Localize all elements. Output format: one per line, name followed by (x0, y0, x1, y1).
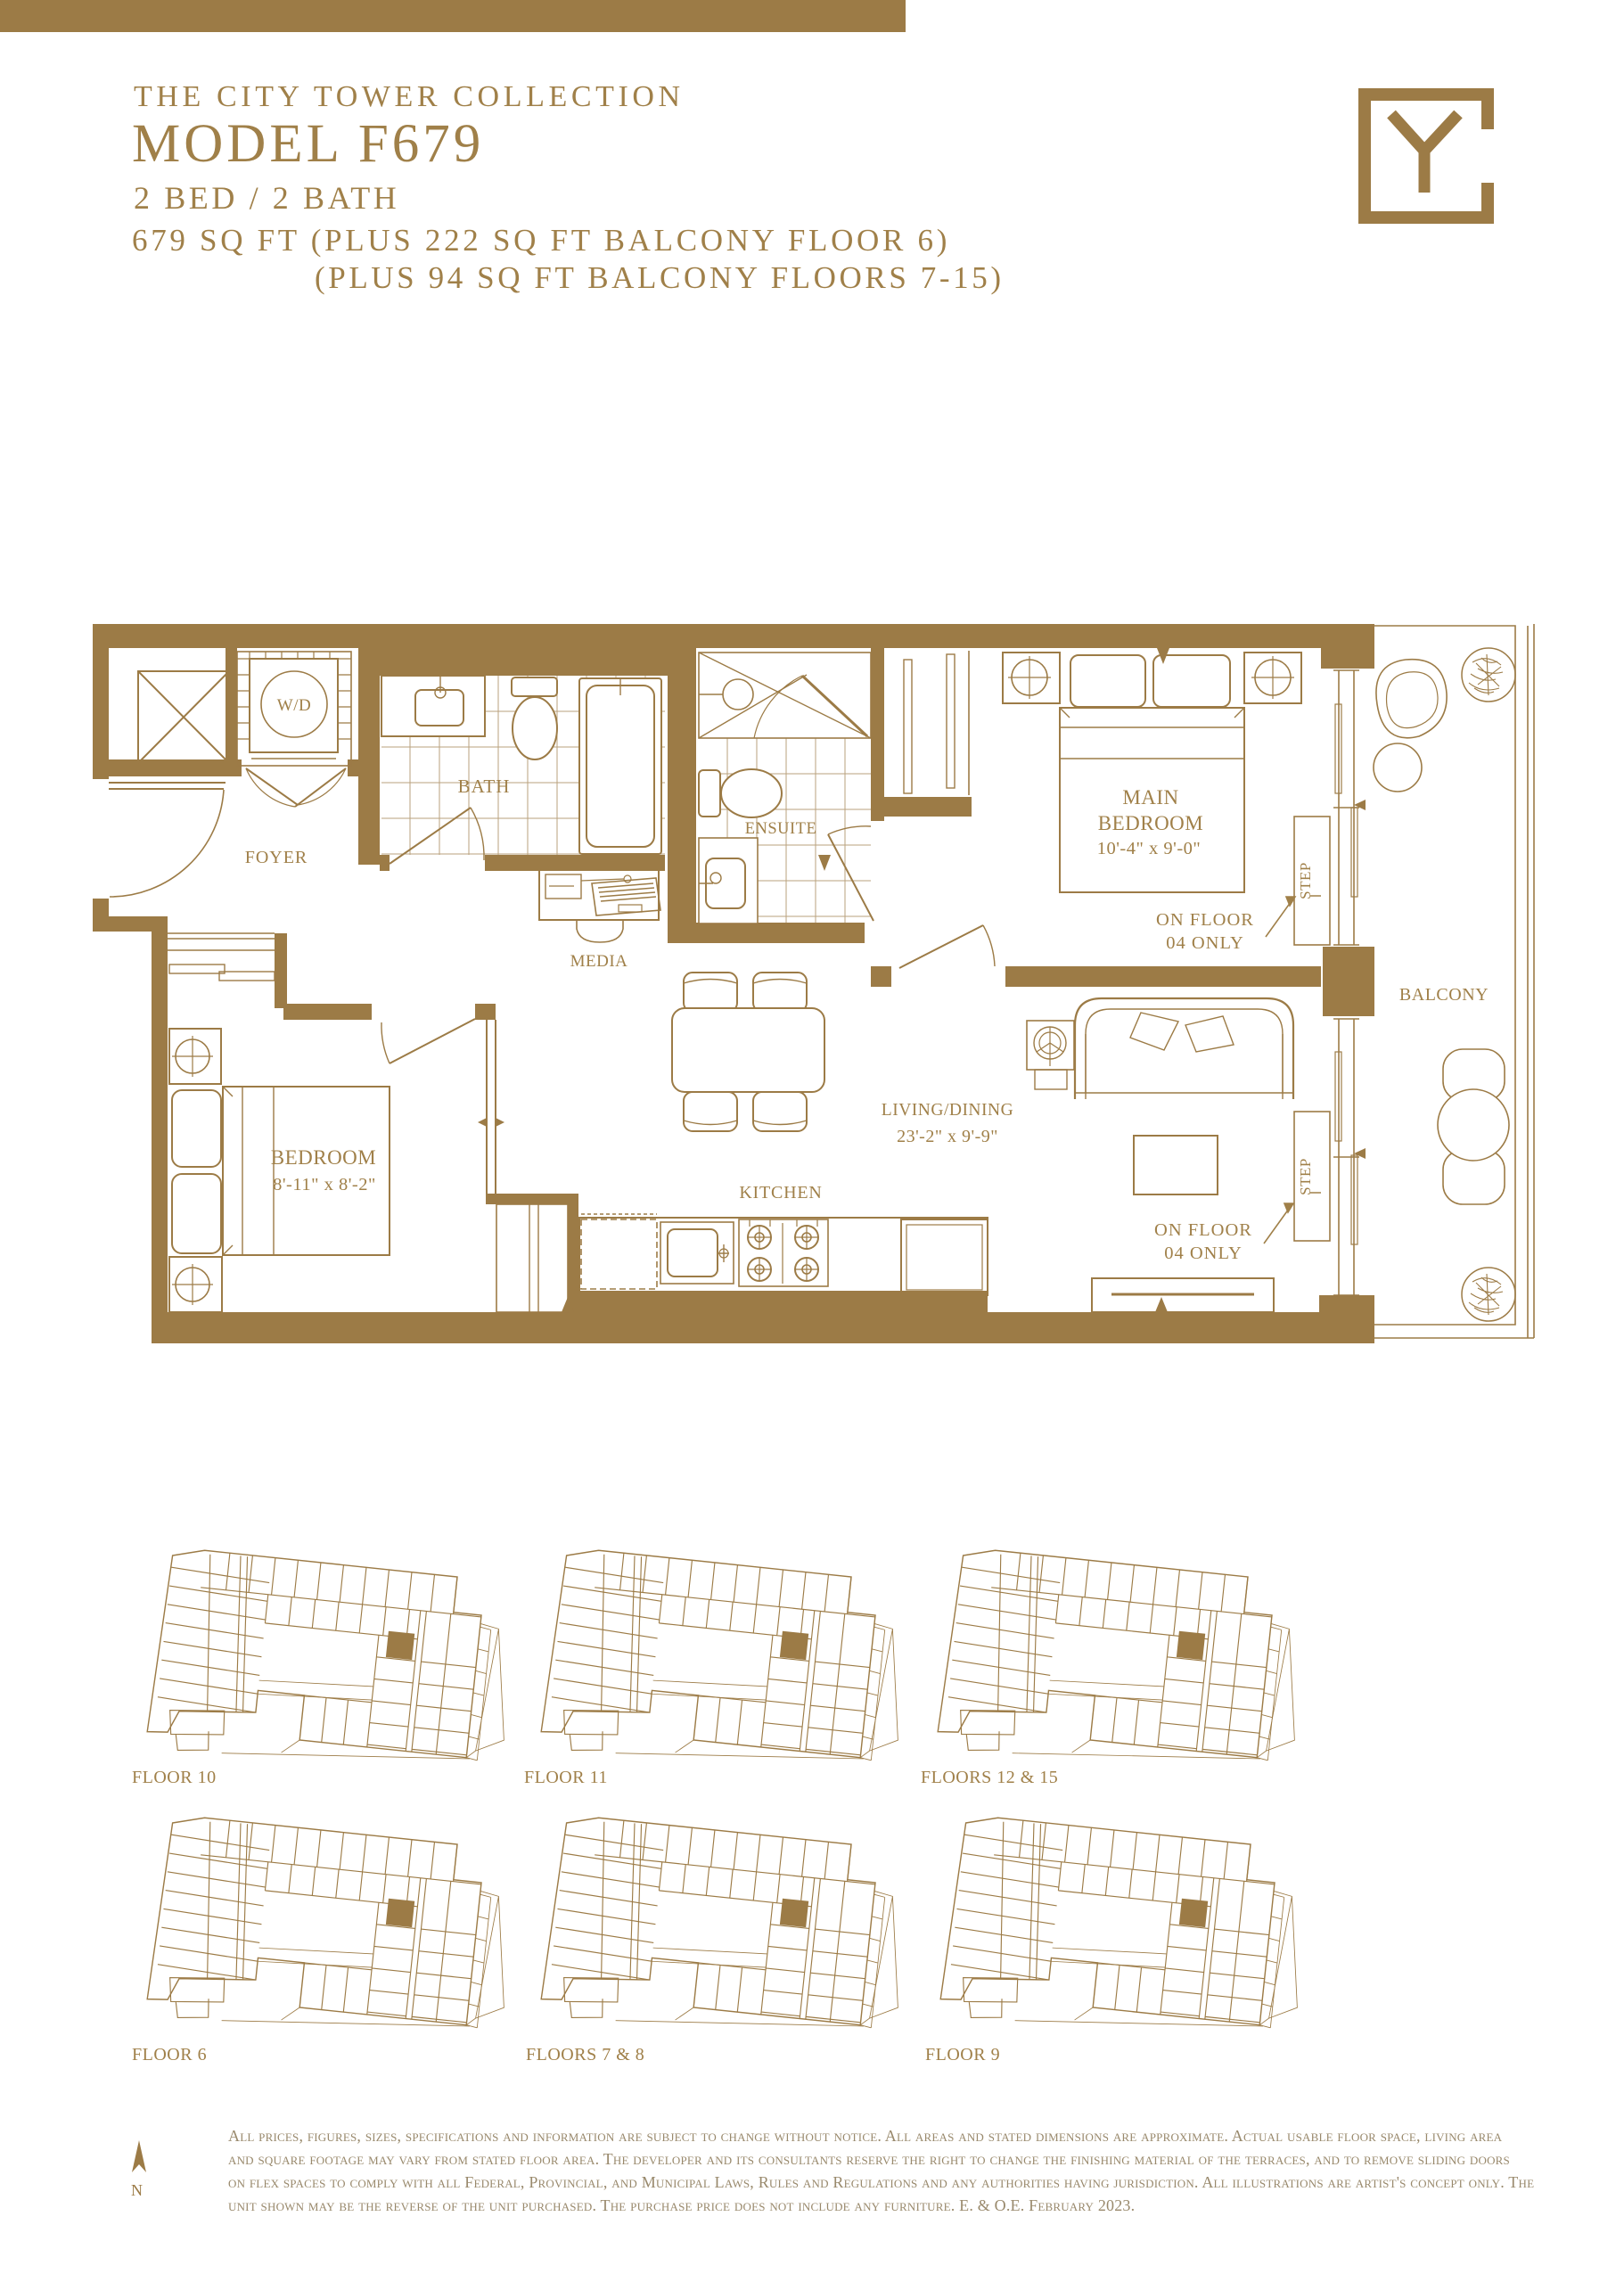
svg-text:W/D: W/D (277, 696, 311, 715)
svg-text:BEDROOM: BEDROOM (1098, 812, 1204, 834)
svg-text:THE CITY TOWER COLLECTION: THE CITY TOWER COLLECTION (134, 80, 685, 113)
svg-text:N: N (131, 2181, 143, 2199)
svg-text:on flex spaces to comply with: on flex spaces to comply with all Federa… (228, 2173, 1534, 2191)
svg-text:KITCHEN: KITCHEN (739, 1183, 822, 1203)
svg-text:23'-2" x 9'-9": 23'-2" x 9'-9" (897, 1127, 998, 1146)
svg-text:8'-11" x 8'-2": 8'-11" x 8'-2" (273, 1175, 376, 1194)
svg-text:All prices, figures, sizes, sp: All prices, figures, sizes, specificatio… (228, 2127, 1503, 2145)
svg-text:MAIN: MAIN (1122, 786, 1178, 809)
svg-text:MODEL F679: MODEL F679 (132, 114, 484, 174)
svg-text:(PLUS 94 SQ FT BALCONY FLOORS: (PLUS 94 SQ FT BALCONY FLOORS 7-15) (315, 260, 1005, 295)
svg-text:BEDROOM: BEDROOM (271, 1146, 377, 1169)
svg-text:2 BED / 2 BATH: 2 BED / 2 BATH (134, 180, 399, 216)
svg-text:FLOOR 11: FLOOR 11 (524, 1768, 608, 1787)
svg-text:BALCONY: BALCONY (1399, 985, 1489, 1005)
svg-text:ON FLOOR: ON FLOOR (1156, 910, 1254, 930)
svg-text:LIVING/DINING: LIVING/DINING (882, 1101, 1013, 1120)
svg-text:FLOORS 7 & 8: FLOORS 7 & 8 (526, 2045, 644, 2064)
svg-text:ENSUITE: ENSUITE (745, 820, 817, 838)
svg-text:FLOOR 10: FLOOR 10 (132, 1768, 217, 1787)
svg-text:STEP: STEP (1297, 1158, 1314, 1195)
svg-text:BATH: BATH (458, 776, 511, 797)
svg-text:STEP: STEP (1297, 862, 1314, 899)
svg-text:FOYER: FOYER (245, 848, 308, 867)
svg-text:ON FLOOR: ON FLOOR (1154, 1220, 1252, 1240)
svg-text:10'-4" x 9'-0": 10'-4" x 9'-0" (1097, 839, 1202, 858)
svg-text:unit shown may be the reverse: unit shown may be the reverse of the uni… (228, 2196, 1135, 2214)
svg-text:MEDIA: MEDIA (570, 952, 628, 971)
svg-text:FLOOR 6: FLOOR 6 (132, 2045, 207, 2064)
svg-text:679 SQ FT (PLUS 222 SQ FT BALC: 679 SQ FT (PLUS 222 SQ FT BALCONY FLOOR … (132, 223, 950, 258)
svg-text:and square footage may vary fr: and square footage may vary from stated … (228, 2150, 1510, 2168)
svg-text:04 ONLY: 04 ONLY (1164, 1244, 1243, 1263)
svg-text:FLOOR 9: FLOOR 9 (925, 2045, 1000, 2064)
svg-text:04 ONLY: 04 ONLY (1166, 933, 1244, 953)
svg-text:FLOORS 12 & 15: FLOORS 12 & 15 (921, 1768, 1058, 1787)
